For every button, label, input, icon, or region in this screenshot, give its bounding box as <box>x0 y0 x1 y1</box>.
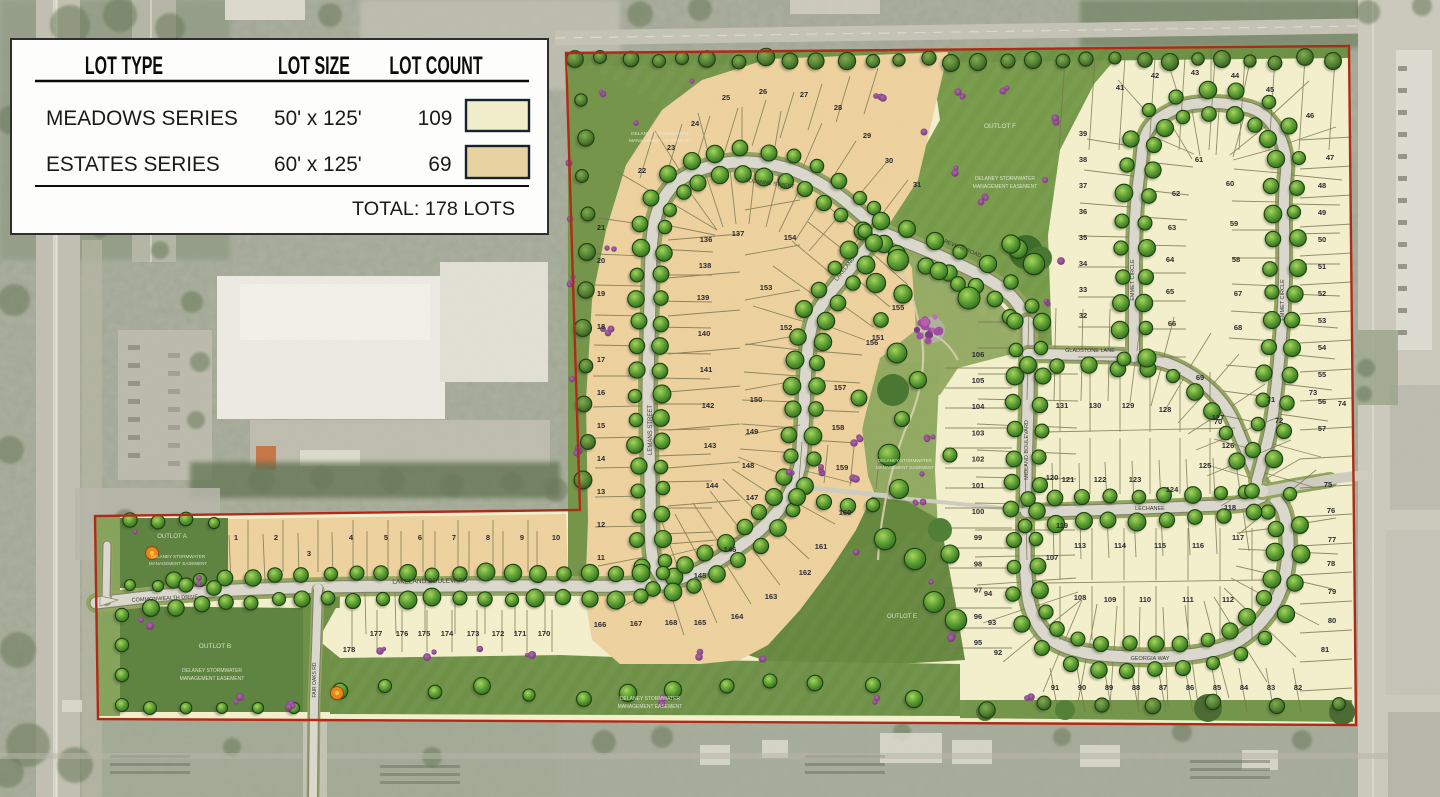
svg-text:69: 69 <box>428 153 451 176</box>
svg-text:LOT TYPE: LOT TYPE <box>85 53 163 80</box>
svg-text:LOT SIZE: LOT SIZE <box>278 53 350 80</box>
svg-text:109: 109 <box>418 107 453 130</box>
svg-text:LOT COUNT: LOT COUNT <box>389 53 482 80</box>
svg-text:50' x 125': 50' x 125' <box>274 107 362 130</box>
svg-text:TOTAL: 178 LOTS: TOTAL: 178 LOTS <box>352 198 515 220</box>
svg-text:60' x 125': 60' x 125' <box>274 153 362 176</box>
svg-text:MEADOWS SERIES: MEADOWS SERIES <box>46 107 238 130</box>
svg-text:ESTATES SERIES: ESTATES SERIES <box>46 153 220 176</box>
